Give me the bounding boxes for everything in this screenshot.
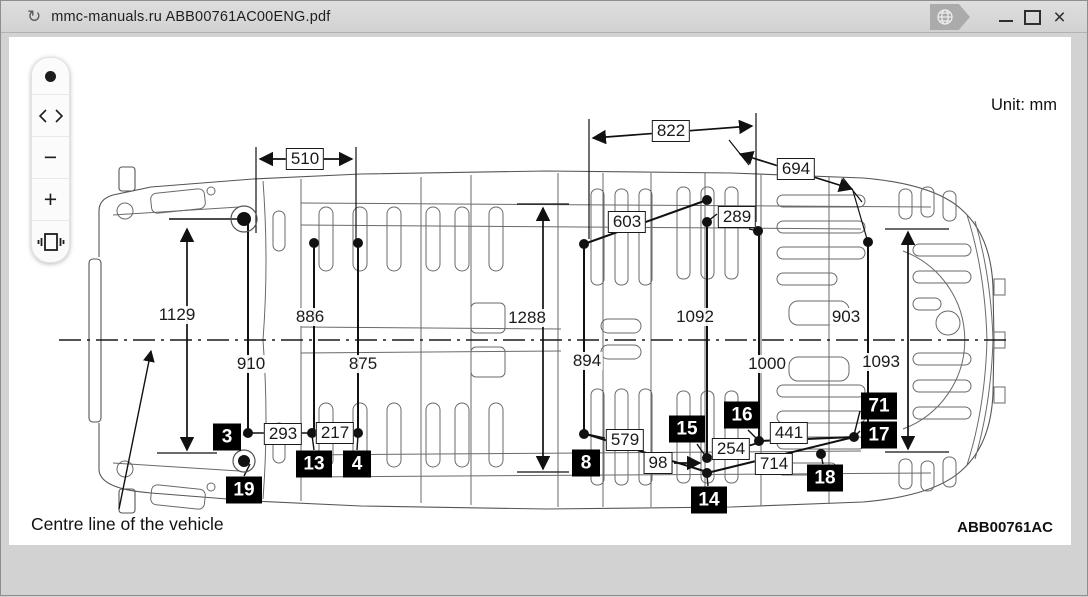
dim-1000: 1000	[746, 355, 788, 373]
dim-1129: 1129	[157, 306, 198, 324]
dim-510: 510	[286, 148, 324, 170]
callout-8: 8	[572, 450, 600, 477]
dim-894: 894	[571, 352, 603, 370]
unit-note: Unit: mm	[991, 96, 1057, 115]
dim-694: 694	[777, 158, 815, 180]
dim-254: 254	[712, 438, 750, 460]
callout-4: 4	[343, 451, 371, 478]
dim-910: 910	[235, 355, 267, 373]
fit-page-icon	[37, 231, 65, 253]
fit-page-button[interactable]	[32, 221, 69, 262]
marker-tool-button[interactable]	[32, 58, 69, 95]
callout-18: 18	[807, 465, 843, 492]
dim-875: 875	[347, 355, 379, 373]
dim-886: 886	[294, 308, 326, 326]
callout-3: 3	[213, 424, 241, 451]
dim-293: 293	[264, 423, 302, 445]
dim-98: 98	[644, 452, 673, 474]
dim-603: 603	[608, 211, 646, 233]
zoom-in-button[interactable]: +	[32, 179, 69, 221]
dim-1093: 1093	[860, 353, 902, 371]
callout-16: 16	[724, 402, 760, 429]
callout-71: 71	[861, 393, 897, 420]
zoom-out-button[interactable]: −	[32, 137, 69, 179]
dim-714: 714	[755, 453, 793, 475]
callout-19: 19	[226, 477, 262, 504]
dim-822: 822	[652, 120, 690, 142]
dot-icon	[45, 71, 56, 82]
callout-15: 15	[669, 416, 705, 443]
callout-13: 13	[296, 451, 332, 478]
minus-icon: −	[44, 146, 57, 169]
page-nav-button[interactable]	[32, 95, 69, 137]
browser-window: ↻ mmc-manuals.ru ABB00761AC00ENG.pdf ×	[0, 0, 1088, 596]
vehicle-underbody-drawing	[1, 1, 1088, 597]
dim-1288: 1288	[506, 309, 548, 327]
plus-icon: +	[44, 188, 57, 211]
dim-217: 217	[316, 422, 354, 444]
dim-289: 289	[718, 206, 756, 228]
dim-441: 441	[770, 422, 808, 444]
centre-line-note: Centre line of the vehicle	[31, 514, 224, 535]
dim-1092: 1092	[674, 308, 716, 326]
dim-903: 903	[830, 308, 862, 326]
pdf-toolbar: − +	[31, 57, 70, 263]
dim-579: 579	[606, 429, 644, 451]
prev-next-icon	[39, 109, 63, 123]
figure-code: ABB00761AC	[957, 519, 1053, 536]
callout-14: 14	[691, 487, 727, 514]
callout-17: 17	[861, 422, 897, 449]
